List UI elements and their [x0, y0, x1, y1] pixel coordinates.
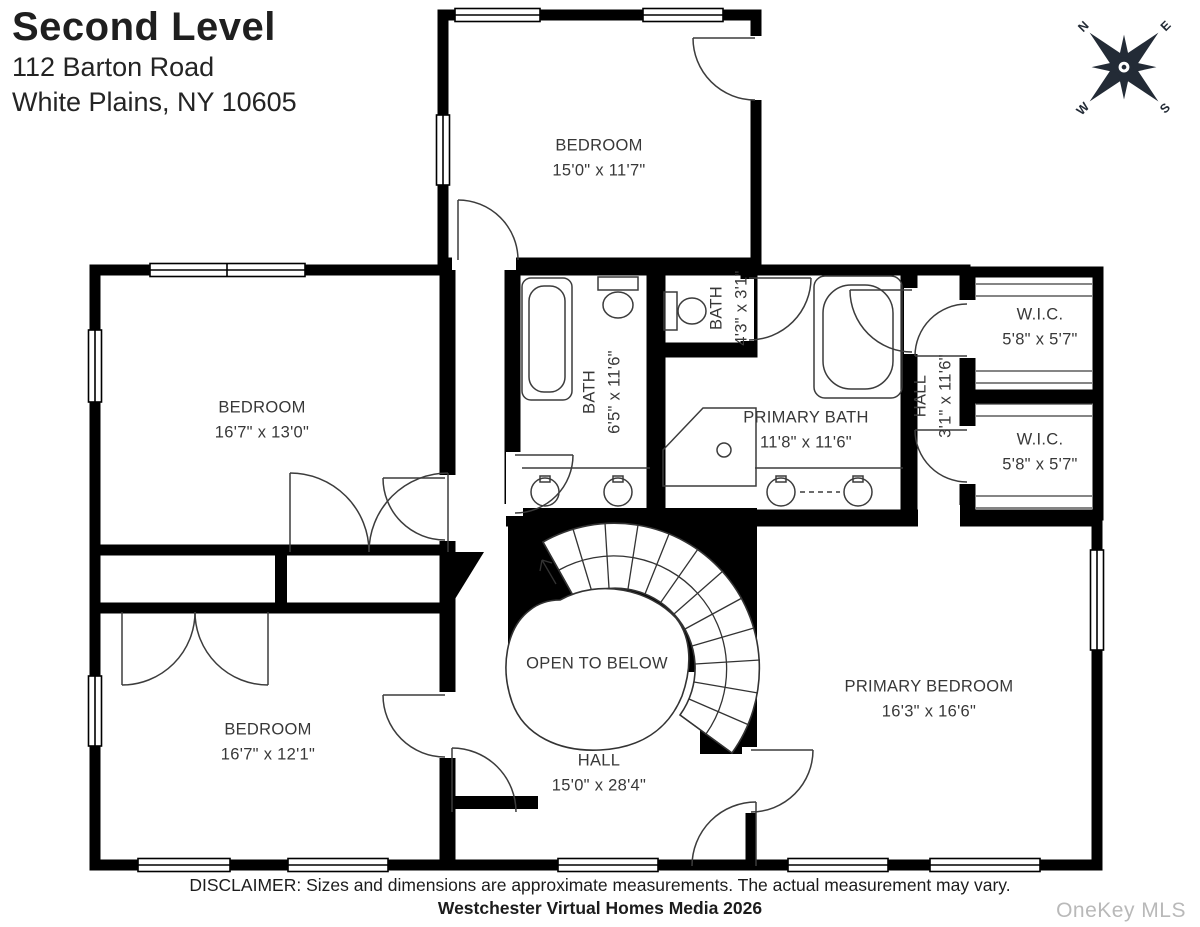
room-label-wic-top: W.I.C.5'8" x 5'7" [1002, 302, 1077, 352]
window [643, 9, 723, 22]
floor-plan-page: Second Level 112 Barton Road White Plain… [0, 0, 1200, 927]
room-label-primary-bath: PRIMARY BATH11'8" x 11'6" [743, 405, 869, 455]
title-block: Second Level 112 Barton Road White Plain… [12, 4, 297, 120]
address-line-2: White Plains, NY 10605 [12, 85, 297, 120]
hall-closet-stub-wall [444, 796, 538, 809]
wall-closet-strip [95, 550, 445, 608]
window [89, 330, 102, 402]
window [150, 264, 305, 277]
window [930, 859, 1040, 872]
window [288, 859, 388, 872]
page-title: Second Level [12, 4, 297, 50]
credit-text: Westchester Virtual Homes Media 2026 [0, 898, 1200, 919]
onekey-mls-watermark: OneKey MLS [1056, 899, 1186, 923]
room-label-bath-small: BATH4'3" x 3'1" [704, 270, 754, 345]
room-label-wic-bottom: W.I.C.5'8" x 5'7" [1002, 427, 1077, 477]
room-label-bedroom-left: BEDROOM16'7" x 13'0" [215, 395, 309, 445]
room-label-bedroom-top: BEDROOM15'0" x 11'7" [552, 133, 645, 183]
disclaimer-text: DISCLAIMER: Sizes and dimensions are app… [0, 875, 1200, 896]
room-label-hall-main: HALL15'0" x 28'4" [552, 748, 646, 798]
room-label-open-to-below: OPEN TO BELOW [526, 652, 668, 677]
closet-divider-wall [275, 549, 287, 613]
window [788, 859, 888, 872]
room-label-hall-upper: HALL3'1" x 11'6" [908, 354, 958, 438]
room-label-bedroom-bottom-left: BEDROOM16'7" x 12'1" [221, 717, 315, 767]
window [1091, 550, 1104, 650]
window [138, 859, 230, 872]
address-line-1: 112 Barton Road [12, 50, 297, 85]
room-label-bath-main: BATH6'5" x 11'6" [577, 350, 627, 434]
footer: DISCLAIMER: Sizes and dimensions are app… [0, 875, 1200, 919]
window [437, 115, 450, 185]
room-label-primary-bedroom: PRIMARY BEDROOM16'3" x 16'6" [845, 674, 1014, 724]
window [455, 9, 540, 22]
window [89, 676, 102, 746]
window [558, 859, 658, 872]
